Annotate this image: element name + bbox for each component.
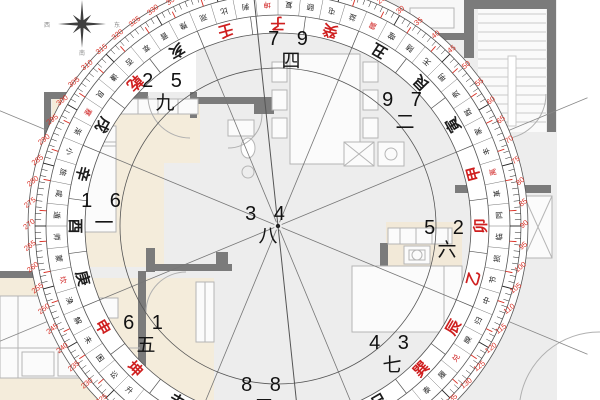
furniture: [363, 118, 378, 138]
furniture: [378, 142, 404, 166]
furniture: [363, 62, 378, 82]
hexagram-label: 剥: [241, 2, 250, 12]
luopan-floorplan-screenshot: 2025303540455055606570758085909510010511…: [0, 0, 600, 400]
furniture: [409, 250, 425, 260]
floorplan-compass-canvas: 2025303540455055606570758085909510010511…: [0, 0, 600, 400]
wall: [547, 0, 556, 132]
furniture: [228, 120, 254, 136]
furniture: [272, 62, 287, 82]
furniture: [22, 352, 54, 376]
furniture: [272, 118, 287, 138]
stair-rail: [508, 56, 516, 126]
hexagram-label: 复: [284, 0, 292, 10]
sector-ray-outer: [0, 98, 47, 131]
mountain-label: 卯: [471, 218, 489, 233]
wall: [216, 252, 228, 266]
wall: [254, 97, 274, 114]
hexagram-label: 师: [52, 233, 62, 241]
rose-label-west: 西: [44, 22, 50, 29]
compass-center-dot: [276, 224, 280, 228]
rose-label-east: 东: [114, 21, 120, 29]
wall: [464, 0, 474, 58]
hexagram-label: 临: [494, 232, 504, 240]
hexagram-label: 坤: [263, 0, 271, 10]
wall: [474, 0, 555, 9]
furniture: [363, 90, 378, 110]
furniture: [388, 228, 452, 244]
furniture: [272, 90, 287, 110]
mountain-label: 酉: [67, 218, 85, 233]
hexagram-label: 同: [495, 211, 504, 219]
hexagram-label: 遁: [52, 211, 62, 219]
mountain-label: 子: [270, 15, 285, 33]
rose-label-south: 南: [79, 49, 85, 57]
